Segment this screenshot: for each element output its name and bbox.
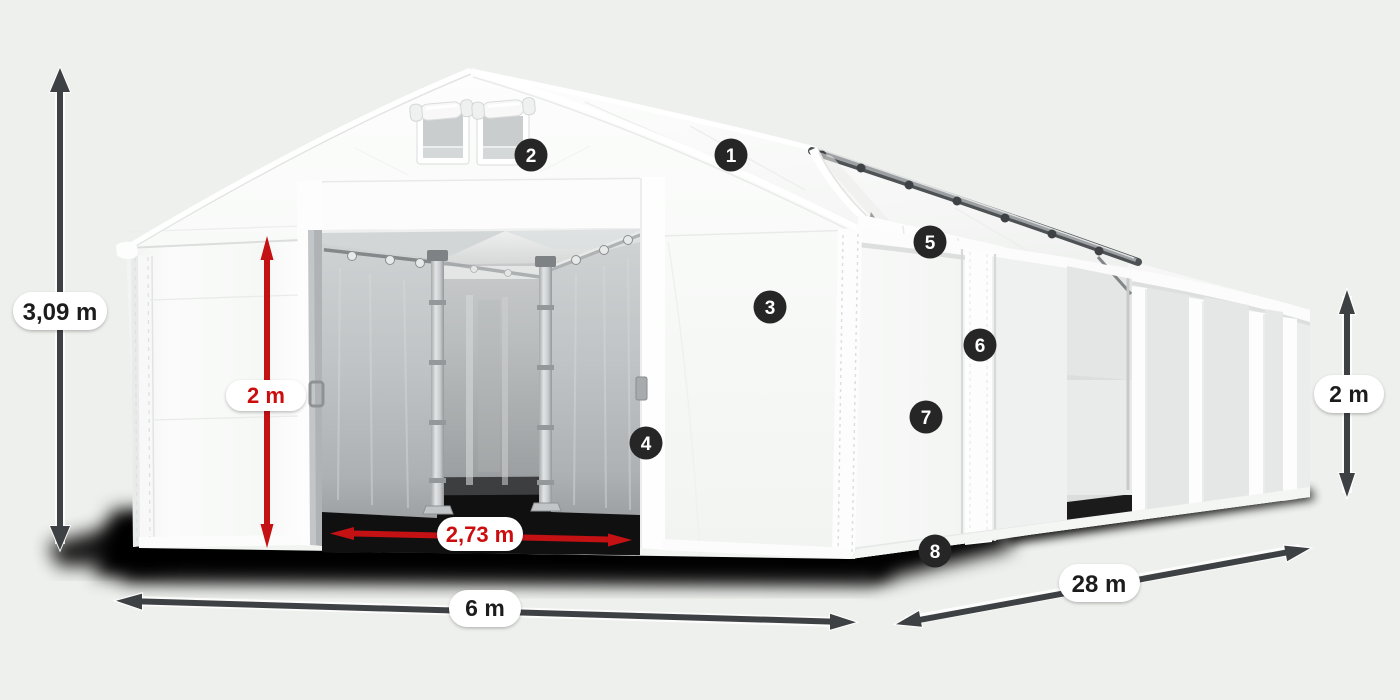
svg-text:8: 8: [930, 542, 941, 563]
svg-text:3: 3: [765, 298, 776, 319]
svg-text:6 m: 6 m: [465, 595, 505, 621]
svg-text:3,09 m: 3,09 m: [23, 299, 98, 326]
svg-text:2,73 m: 2,73 m: [446, 522, 515, 547]
svg-text:1: 1: [726, 146, 737, 167]
svg-text:4: 4: [641, 434, 652, 455]
svg-text:7: 7: [921, 408, 932, 429]
svg-text:28 m: 28 m: [1072, 571, 1127, 598]
svg-text:6: 6: [975, 336, 986, 357]
svg-text:5: 5: [925, 233, 936, 254]
svg-text:2 m: 2 m: [247, 383, 285, 408]
svg-text:2: 2: [526, 146, 537, 167]
svg-text:2 m: 2 m: [1329, 381, 1369, 407]
